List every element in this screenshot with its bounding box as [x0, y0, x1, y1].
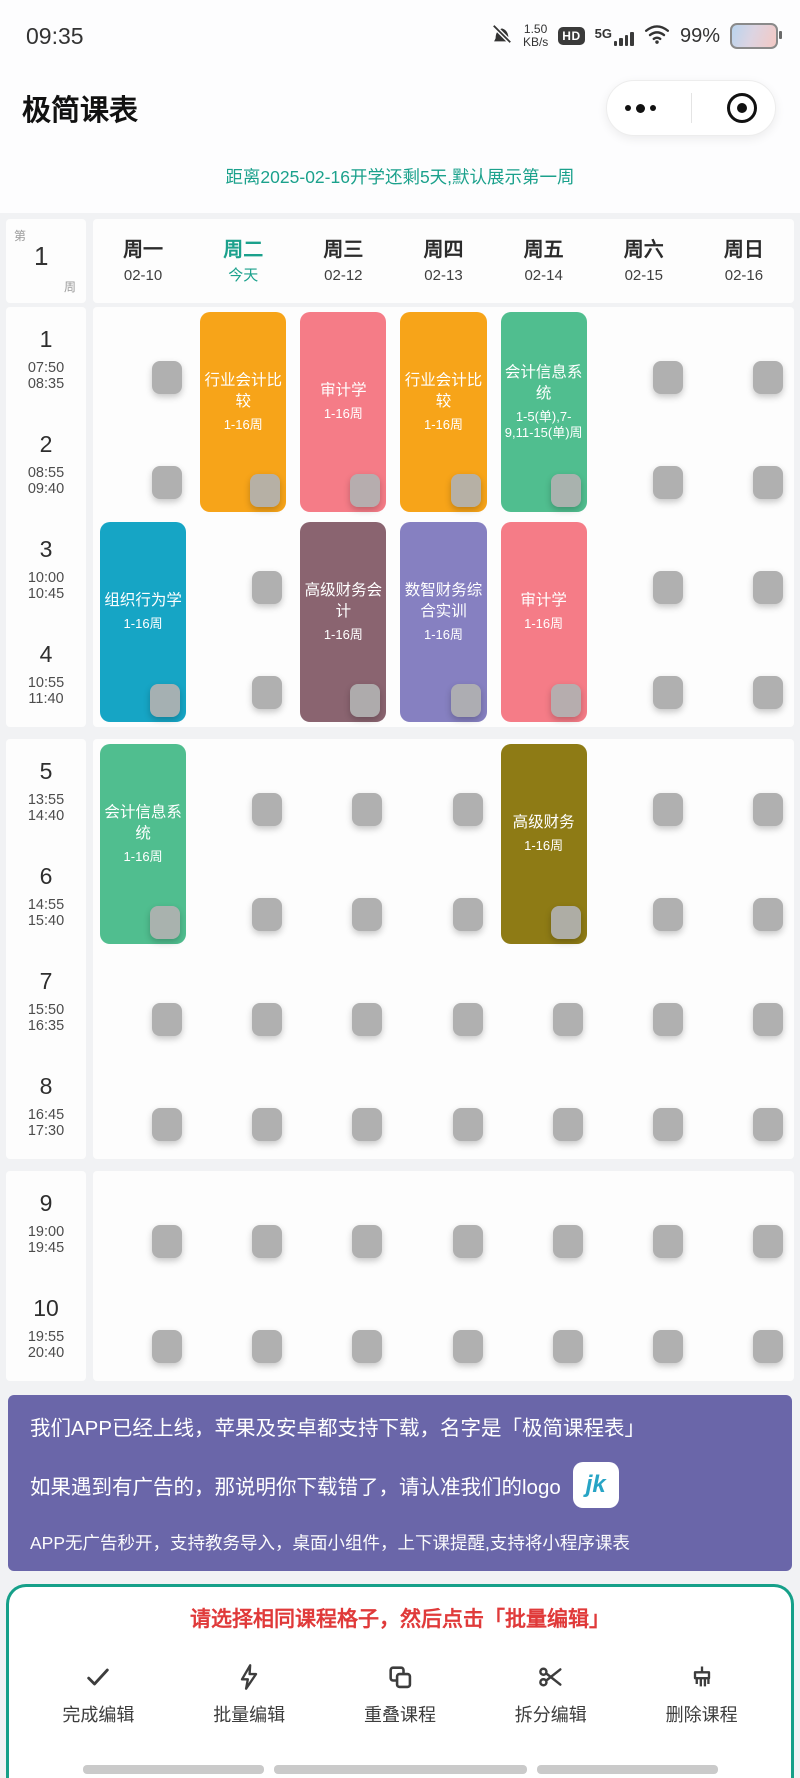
period-label-5: 513:5514:40: [6, 739, 86, 844]
grid-cell: [694, 739, 794, 844]
course-checkbox[interactable]: [451, 684, 481, 717]
day-sub: 02-14: [494, 266, 594, 286]
grid-cell: [193, 517, 293, 622]
cell-checkbox[interactable]: [653, 898, 683, 931]
week-number: 1: [34, 241, 48, 272]
schedule-section: 513:5514:40614:5515:40715:5016:35816:451…: [6, 739, 794, 1159]
close-home-icon[interactable]: [727, 93, 757, 123]
cell-checkbox[interactable]: [653, 1108, 683, 1141]
period-start-time: 15:50: [28, 1002, 64, 1019]
top-area: 09:35 1.50 KB/s HD 5G: [0, 0, 800, 213]
course-weeks: 1-16周: [424, 627, 463, 643]
edit-button-1[interactable]: 完成编辑: [62, 1663, 134, 1727]
grid-cell: [93, 412, 193, 517]
course-name: 数智财务综合实训: [403, 581, 483, 623]
grid-cell: [93, 307, 193, 412]
grid-cell: [594, 1054, 694, 1159]
grid-cell: [393, 1276, 493, 1381]
grid-cell: [494, 1276, 594, 1381]
day-sub: 02-12: [293, 266, 393, 286]
cell-checkbox[interactable]: [653, 1225, 683, 1258]
schedule-section: 919:0019:451019:5520:40: [6, 1171, 794, 1381]
cell-checkbox[interactable]: [152, 1108, 182, 1141]
day-header-3: 周三02-12: [293, 237, 393, 286]
course-name: 行业会计比较: [403, 371, 483, 413]
cell-checkbox[interactable]: [753, 571, 783, 604]
schedule-grid: [93, 1171, 794, 1381]
course-checkbox[interactable]: [451, 474, 481, 507]
grid-cell: [93, 1276, 193, 1381]
battery-percent: 99%: [680, 25, 720, 48]
grid-cell: [594, 307, 694, 412]
bolt-icon: [235, 1663, 263, 1691]
period-label-4: 410:5511:40: [6, 622, 86, 727]
grid-cell: [694, 844, 794, 949]
course-name: 高级财务会计: [303, 581, 383, 623]
period-end-time: 11:40: [28, 691, 63, 708]
day-header-4: 周四02-13: [393, 237, 493, 286]
course-weeks: 1-16周: [124, 616, 163, 632]
grid-cell: [193, 622, 293, 727]
miniprogram-capsule: [606, 80, 776, 136]
edit-instruction: 请选择相同课程格子，然后点击「批量编辑」: [9, 1603, 791, 1633]
grid-cell: [393, 1171, 493, 1276]
period-number: 10: [33, 1295, 59, 1321]
grid-cell: [293, 1276, 393, 1381]
course-checkbox[interactable]: [150, 684, 180, 717]
schedule-grid: 会计信息系统1-16周高级财务1-16周: [93, 739, 794, 1159]
period-number: 1: [40, 326, 53, 352]
schedule: 第 1 周 周一02-10周二今天周三02-12周四02-13周五02-14周六…: [0, 213, 800, 1381]
course-weeks: 1-16周: [524, 616, 563, 632]
course-checkbox[interactable]: [350, 684, 380, 717]
cell-checkbox[interactable]: [453, 1330, 483, 1363]
edit-button-label: 拆分编辑: [515, 1701, 587, 1727]
course-checkbox[interactable]: [551, 474, 581, 507]
cell-checkbox[interactable]: [352, 1225, 382, 1258]
period-label-9: 919:0019:45: [6, 1171, 86, 1276]
period-end-time: 10:45: [28, 586, 64, 603]
day-label: 周一: [93, 237, 193, 263]
clock-time: 09:35: [26, 23, 84, 50]
cell-checkbox[interactable]: [453, 793, 483, 826]
edit-button-label: 删除课程: [666, 1701, 738, 1727]
day-header-2: 周二今天: [193, 237, 293, 286]
grid-cell: [193, 844, 293, 949]
network-speed: 1.50 KB/s: [523, 23, 548, 48]
grid-cell: [193, 1171, 293, 1276]
course-block[interactable]: 组织行为学1-16周: [100, 522, 186, 722]
cell-checkbox[interactable]: [252, 1003, 282, 1036]
day-header-5: 周五02-14: [494, 237, 594, 286]
period-times-column: 513:5514:40614:5515:40715:5016:35816:451…: [6, 739, 86, 1159]
cell-checkbox[interactable]: [352, 898, 382, 931]
cell-checkbox[interactable]: [453, 1003, 483, 1036]
overlap-icon: [386, 1663, 414, 1691]
edit-button-label: 重叠课程: [364, 1701, 436, 1727]
period-label-1: 107:5008:35: [6, 307, 86, 412]
grid-cell: [293, 1171, 393, 1276]
course-name: 组织行为学: [104, 591, 182, 612]
countdown-notice: 距离2025-02-16开学还剩5天,默认展示第一周: [0, 142, 800, 203]
period-label-3: 310:0010:45: [6, 517, 86, 622]
period-start-time: 19:00: [28, 1224, 64, 1241]
course-weeks: 1-16周: [324, 627, 363, 643]
day-label: 周二: [193, 237, 293, 263]
cell-checkbox[interactable]: [152, 1330, 182, 1363]
cell-checkbox[interactable]: [553, 1225, 583, 1258]
course-name: 行业会计比较: [203, 371, 283, 413]
grid-cell: [393, 1054, 493, 1159]
period-label-7: 715:5016:35: [6, 949, 86, 1054]
course-name: 审计学: [520, 591, 567, 612]
grid-cell: [393, 844, 493, 949]
day-header-7: 周日02-16: [694, 237, 794, 286]
day-label: 周日: [694, 237, 794, 263]
cell-checkbox[interactable]: [252, 898, 282, 931]
edit-button-label: 批量编辑: [213, 1701, 285, 1727]
cell-checkbox[interactable]: [753, 1225, 783, 1258]
check-icon: [84, 1663, 112, 1691]
scissors-icon: [537, 1663, 565, 1691]
schedule-grid: 行业会计比较1-16周审计学1-16周行业会计比较1-16周会计信息系统1-5(…: [93, 307, 794, 727]
course-weeks: 1-16周: [324, 406, 363, 422]
grid-cell: [93, 1054, 193, 1159]
edit-button-2[interactable]: 批量编辑: [213, 1663, 285, 1727]
cell-checkbox[interactable]: [553, 1108, 583, 1141]
period-end-time: 09:40: [28, 481, 64, 498]
course-block[interactable]: 数智财务综合实训1-16周: [400, 522, 486, 722]
period-number: 8: [40, 1073, 53, 1099]
grid-cell: [594, 517, 694, 622]
course-weeks: 1-16周: [224, 417, 263, 433]
week-indicator[interactable]: 第 1 周: [6, 219, 86, 303]
period-end-time: 17:30: [28, 1123, 64, 1140]
signal-5g-icon: 5G: [595, 26, 634, 46]
cell-checkbox[interactable]: [352, 793, 382, 826]
cell-checkbox[interactable]: [653, 676, 683, 709]
grid-cell: [494, 1171, 594, 1276]
edit-button-label: 完成编辑: [62, 1701, 134, 1727]
course-name: 高级财务: [513, 813, 575, 834]
cell-checkbox[interactable]: [653, 793, 683, 826]
grid-cell: [494, 1054, 594, 1159]
period-number: 6: [40, 863, 53, 889]
course-block[interactable]: 行业会计比较1-16周: [200, 312, 286, 512]
cell-checkbox[interactable]: [252, 793, 282, 826]
day-label: 周六: [594, 237, 694, 263]
status-bar: 09:35 1.50 KB/s HD 5G: [0, 0, 800, 66]
grid-cell: [694, 307, 794, 412]
course-block[interactable]: 会计信息系统1-16周: [100, 744, 186, 944]
course-checkbox[interactable]: [150, 906, 180, 939]
course-block[interactable]: 会计信息系统1-5(单),7-9,11-15(单)周: [501, 312, 587, 512]
cell-checkbox[interactable]: [753, 1108, 783, 1141]
course-block[interactable]: 行业会计比较1-16周: [400, 312, 486, 512]
period-number: 7: [40, 968, 53, 994]
broom-icon: [688, 1663, 716, 1691]
wifi-icon: [644, 23, 670, 50]
app-logo: jk: [573, 1462, 619, 1508]
period-end-time: 16:35: [28, 1018, 64, 1035]
cell-checkbox[interactable]: [352, 1108, 382, 1141]
cell-checkbox[interactable]: [252, 1108, 282, 1141]
week-prefix: 第: [14, 227, 26, 244]
grid-cell: [93, 1171, 193, 1276]
grid-cell: [293, 949, 393, 1054]
grid-cell: [594, 622, 694, 727]
cell-checkbox[interactable]: [653, 1330, 683, 1363]
grid-cell: [694, 1054, 794, 1159]
period-start-time: 16:45: [28, 1107, 64, 1124]
course-block[interactable]: 高级财务1-16周: [501, 744, 587, 944]
period-number: 5: [40, 758, 53, 784]
day-sub: 02-10: [93, 266, 193, 286]
course-checkbox[interactable]: [551, 906, 581, 939]
course-block[interactable]: 审计学1-16周: [501, 522, 587, 722]
mute-bell-icon: [491, 22, 513, 51]
grid-cell: [594, 739, 694, 844]
cell-checkbox[interactable]: [252, 676, 282, 709]
course-checkbox[interactable]: [551, 684, 581, 717]
cell-checkbox[interactable]: [453, 898, 483, 931]
edit-panel: 请选择相同课程格子，然后点击「批量编辑」 完成编辑批量编辑重叠课程拆分编辑删除课…: [6, 1584, 794, 1778]
cell-checkbox[interactable]: [152, 361, 182, 394]
cell-checkbox[interactable]: [553, 1330, 583, 1363]
cell-checkbox[interactable]: [152, 1225, 182, 1258]
day-sub: 02-13: [393, 266, 493, 286]
period-number: 3: [40, 536, 53, 562]
period-start-time: 10:55: [28, 675, 64, 692]
edit-button-5[interactable]: 删除课程: [666, 1663, 738, 1727]
grid-cell: [293, 1054, 393, 1159]
banner-line2: 如果遇到有广告的，那说明你下载错了，请认准我们的logo: [30, 1470, 561, 1500]
cell-checkbox[interactable]: [753, 898, 783, 931]
period-start-time: 08:55: [28, 465, 64, 482]
grid-cell: [694, 1276, 794, 1381]
banner-line3: APP无广告秒开，支持教务导入，桌面小组件，上下课提醒,支持将小程序课表: [30, 1530, 770, 1555]
course-weeks: 1-16周: [524, 838, 563, 854]
cell-checkbox[interactable]: [753, 1330, 783, 1363]
cell-checkbox[interactable]: [753, 676, 783, 709]
grid-cell: [293, 844, 393, 949]
course-block[interactable]: 审计学1-16周: [300, 312, 386, 512]
period-end-time: 20:40: [28, 1345, 64, 1362]
day-header-1: 周一02-10: [93, 237, 193, 286]
cell-checkbox[interactable]: [753, 793, 783, 826]
grid-cell: [293, 739, 393, 844]
cell-checkbox[interactable]: [152, 466, 182, 499]
day-header-row: 周一02-10周二今天周三02-12周四02-13周五02-14周六02-15周…: [93, 219, 794, 303]
course-name: 审计学: [320, 381, 367, 402]
grid-cell: [594, 1276, 694, 1381]
day-sub: 02-15: [594, 266, 694, 286]
grid-cell: [193, 1054, 293, 1159]
grid-cell: [694, 622, 794, 727]
grid-cell: [594, 949, 694, 1054]
week-suffix: 周: [64, 278, 76, 295]
edit-button-3[interactable]: 重叠课程: [364, 1663, 436, 1727]
period-number: 2: [40, 431, 53, 457]
grid-cell: [93, 949, 193, 1054]
page-title: 极简课表: [22, 87, 138, 129]
period-label-2: 208:5509:40: [6, 412, 86, 517]
period-number: 9: [40, 1190, 53, 1216]
bottom-skeleton-bar: [83, 1765, 264, 1774]
period-label-6: 614:5515:40: [6, 844, 86, 949]
bottom-skeleton-bar: [537, 1765, 718, 1774]
day-label: 周四: [393, 237, 493, 263]
cell-checkbox[interactable]: [152, 1003, 182, 1036]
cell-checkbox[interactable]: [453, 1225, 483, 1258]
period-end-time: 15:40: [28, 913, 64, 930]
grid-cell: [594, 844, 694, 949]
period-label-10: 1019:5520:40: [6, 1276, 86, 1381]
schedule-sections: 107:5008:35208:5509:40310:0010:45410:551…: [6, 307, 794, 1381]
period-start-time: 07:50: [28, 360, 64, 377]
grid-cell: [694, 1171, 794, 1276]
grid-cell: [494, 949, 594, 1054]
grid-cell: [393, 739, 493, 844]
cell-checkbox[interactable]: [653, 466, 683, 499]
cell-checkbox[interactable]: [453, 1108, 483, 1141]
course-block[interactable]: 高级财务会计1-16周: [300, 522, 386, 722]
schedule-section: 107:5008:35208:5509:40310:0010:45410:551…: [6, 307, 794, 727]
day-header-6: 周六02-15: [594, 237, 694, 286]
day-label: 周三: [293, 237, 393, 263]
period-start-time: 19:55: [28, 1329, 64, 1346]
grid-cell: [694, 949, 794, 1054]
cell-checkbox[interactable]: [252, 571, 282, 604]
cell-checkbox[interactable]: [753, 466, 783, 499]
cell-checkbox[interactable]: [352, 1003, 382, 1036]
period-number: 4: [40, 641, 53, 667]
course-name: 会计信息系统: [504, 363, 584, 405]
grid-cell: [193, 1276, 293, 1381]
grid-cell: [594, 1171, 694, 1276]
cell-checkbox[interactable]: [553, 1003, 583, 1036]
cell-checkbox[interactable]: [753, 1003, 783, 1036]
cell-checkbox[interactable]: [753, 361, 783, 394]
day-label: 周五: [494, 237, 594, 263]
grid-cell: [594, 412, 694, 517]
grid-cell: [694, 412, 794, 517]
period-start-time: 10:00: [28, 570, 64, 587]
course-checkbox[interactable]: [250, 474, 280, 507]
course-weeks: 1-5(单),7-9,11-15(单)周: [504, 409, 584, 442]
course-weeks: 1-16周: [424, 417, 463, 433]
course-checkbox[interactable]: [350, 474, 380, 507]
more-menu-icon[interactable]: [625, 104, 656, 113]
grid-cell: [393, 949, 493, 1054]
cell-checkbox[interactable]: [653, 571, 683, 604]
edit-button-4[interactable]: 拆分编辑: [515, 1663, 587, 1727]
period-label-8: 816:4517:30: [6, 1054, 86, 1159]
period-end-time: 08:35: [28, 376, 64, 393]
grid-cell: [694, 517, 794, 622]
cell-checkbox[interactable]: [352, 1330, 382, 1363]
bottom-skeleton-bar: [274, 1765, 527, 1774]
day-sub: 02-16: [694, 266, 794, 286]
cell-checkbox[interactable]: [252, 1225, 282, 1258]
cell-checkbox[interactable]: [653, 1003, 683, 1036]
cell-checkbox[interactable]: [653, 361, 683, 394]
period-end-time: 14:40: [28, 808, 64, 825]
bottom-skeleton-row: [9, 1765, 791, 1774]
app-promo-banner[interactable]: 我们APP已经上线，苹果及安卓都支持下载，名字是「极简课程表」 如果遇到有广告的…: [8, 1395, 792, 1571]
grid-cell: [193, 739, 293, 844]
course-weeks: 1-16周: [124, 849, 163, 865]
capsule-divider: [691, 93, 692, 123]
grid-cell: [193, 949, 293, 1054]
edit-buttons-row: 完成编辑批量编辑重叠课程拆分编辑删除课程: [9, 1663, 791, 1727]
course-name: 会计信息系统: [103, 803, 183, 845]
battery-icon: [730, 23, 778, 49]
day-sub: 今天: [193, 266, 293, 286]
hd-badge-icon: HD: [558, 27, 584, 45]
banner-line1: 我们APP已经上线，苹果及安卓都支持下载，名字是「极简课程表」: [30, 1415, 770, 1444]
period-times-column: 919:0019:451019:5520:40: [6, 1171, 86, 1381]
period-start-time: 13:55: [28, 792, 64, 809]
period-start-time: 14:55: [28, 897, 64, 914]
period-end-time: 19:45: [28, 1240, 64, 1257]
cell-checkbox[interactable]: [252, 1330, 282, 1363]
period-times-column: 107:5008:35208:5509:40310:0010:45410:551…: [6, 307, 86, 727]
